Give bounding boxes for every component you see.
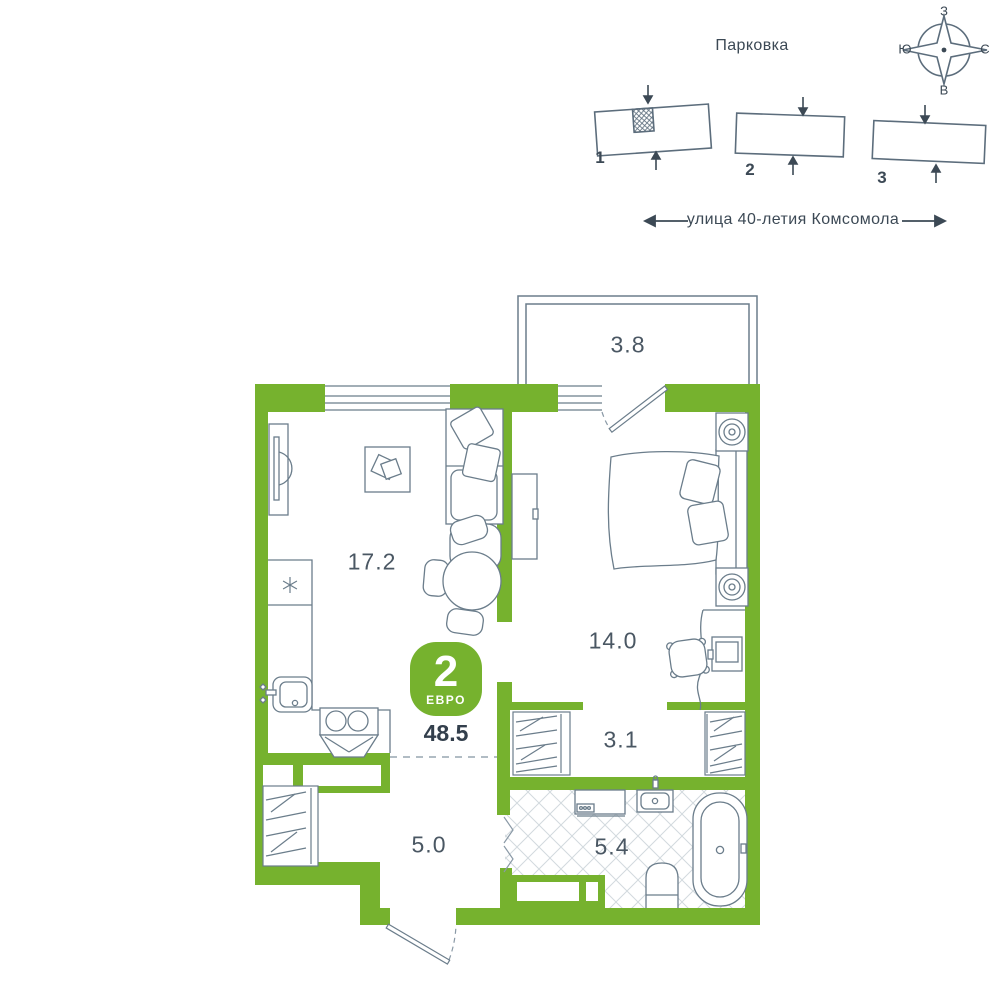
parking-label: Парковка [715, 37, 788, 55]
street-label: улица 40-летия Комсомола [687, 211, 899, 229]
building-2-number: 2 [745, 160, 754, 180]
wardrobe-area-label: 3.1 [604, 727, 639, 754]
floorplan-page: Парковка улица 40-летия Комсомола З Ю С … [0, 0, 1000, 1000]
bathtub [693, 793, 747, 906]
compass-north-label: С [980, 42, 989, 57]
floorplan-drawing [0, 0, 1000, 1000]
building-3-number: 3 [877, 168, 886, 188]
tv-unit [269, 424, 292, 515]
compass-west-label: З [940, 4, 948, 19]
balcony-area-label: 3.8 [611, 332, 646, 359]
bathroom-area-label: 5.4 [595, 834, 630, 861]
sofa [446, 406, 503, 570]
entry-door [386, 924, 456, 964]
hallway-closet [263, 786, 318, 866]
desk-chair [666, 637, 710, 678]
fridge-icon [283, 577, 297, 593]
stove [320, 708, 378, 757]
building-2 [735, 113, 844, 157]
bedroom-area-label: 14.0 [589, 628, 638, 655]
building-3 [872, 121, 986, 164]
closet-right [705, 712, 745, 775]
coffee-table [365, 447, 410, 492]
bed [608, 447, 747, 577]
total-area: 48.5 [412, 720, 480, 747]
living-room-window [325, 385, 450, 411]
washing-machine [575, 790, 625, 816]
apartment-type-badge: 2 ЕВРО [410, 642, 482, 716]
living-kitchen-area-label: 17.2 [348, 549, 397, 576]
nightstand-top [716, 413, 748, 451]
compass-east-label: В [940, 83, 949, 98]
hallway-area-label: 5.0 [412, 832, 447, 859]
apartment-location-marker [633, 108, 655, 132]
building-1 [595, 104, 712, 156]
nightstand-bottom [716, 568, 748, 606]
rooms-count: 2 [434, 652, 458, 692]
building-1-number: 1 [595, 148, 604, 168]
bedroom-window [558, 385, 602, 411]
dining-chair [446, 608, 485, 637]
bedroom-tv-cabinet [512, 474, 538, 559]
compass-south-label: Ю [898, 42, 911, 57]
headboard [736, 447, 747, 577]
euro-type-label: ЕВРО [426, 693, 466, 707]
toilet [646, 863, 678, 908]
compass-icon [903, 16, 987, 84]
pillow [687, 500, 729, 546]
closet-left [513, 712, 570, 775]
balcony-door [602, 386, 667, 432]
